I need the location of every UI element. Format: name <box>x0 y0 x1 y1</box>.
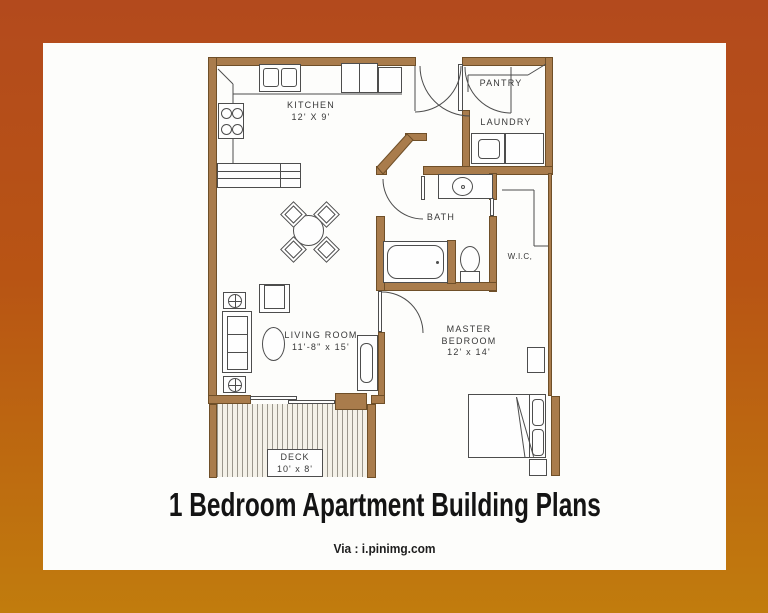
wic-name: W.I.C, <box>500 252 540 262</box>
washer-door <box>478 139 500 159</box>
drain <box>436 261 439 264</box>
wall <box>208 395 251 404</box>
burner <box>221 124 232 135</box>
wall <box>489 216 497 292</box>
wall <box>371 395 385 404</box>
washer <box>471 133 505 164</box>
pin-image-page: DECK 10' x 8' KITCHEN 12' X 9' PANTRY LA… <box>0 0 768 613</box>
page-title-text: 1 Bedroom Apartment Building Plans <box>169 486 601 524</box>
toilet-bowl <box>460 246 480 273</box>
attribution-text: Via : i.pinimg.com <box>333 541 435 556</box>
kitchen-label: KITCHEN 12' X 9' <box>261 100 361 123</box>
sliding-door-panel <box>288 400 335 404</box>
master-bedroom-label: MASTER BEDROOM 12' x 14' <box>429 324 509 359</box>
bath-name: BATH <box>411 212 471 224</box>
deck-label: DECK 10' x 8' <box>268 452 322 475</box>
master-dims: 12' x 14' <box>429 347 509 359</box>
wic-door-leaf <box>490 198 494 216</box>
master-door-arc <box>382 292 423 333</box>
laundry-label: LAUNDRY <box>466 117 546 129</box>
armchair <box>259 284 290 313</box>
wall <box>545 57 553 173</box>
refrigerator <box>359 63 378 93</box>
pantry-label: PANTRY <box>461 78 541 90</box>
sofa <box>222 311 252 373</box>
pantry-door-arc <box>465 67 511 113</box>
end-table-lamp <box>228 294 242 308</box>
deck-label-box: DECK 10' x 8' <box>267 449 323 477</box>
bed <box>468 394 546 458</box>
bath-label: BATH <box>411 212 471 224</box>
sofa-cushions <box>227 316 248 370</box>
laundry-name: LAUNDRY <box>466 117 546 129</box>
bath-door-leaf <box>421 176 425 200</box>
deck-dims: 10' x 8' <box>268 464 322 476</box>
deck-name: DECK <box>268 452 322 464</box>
wall <box>367 404 376 478</box>
wic-label: W.I.C, <box>500 252 540 262</box>
drain <box>461 185 465 189</box>
wall <box>376 166 387 175</box>
wall <box>462 57 553 66</box>
wall <box>447 240 456 284</box>
wall-headboard-strip <box>551 396 560 476</box>
master-door-leaf <box>378 291 382 332</box>
wall <box>335 393 367 410</box>
living-dims: 11'-8" x 15' <box>261 342 381 354</box>
burner <box>232 124 243 135</box>
sink-basin <box>281 68 297 87</box>
wall <box>548 173 552 396</box>
wic-closet-lines <box>502 190 548 246</box>
sink-basin <box>263 68 279 87</box>
bathroom-sink <box>452 177 473 196</box>
living-name: LIVING ROOM <box>261 330 381 342</box>
wall <box>209 404 217 478</box>
stove <box>218 103 244 139</box>
kitchen-name: KITCHEN <box>261 100 361 112</box>
page-title: 1 Bedroom Apartment Building Plans <box>43 486 726 524</box>
attribution: Via : i.pinimg.com <box>43 540 726 558</box>
wall <box>378 282 497 291</box>
end-table-lamp <box>228 378 242 392</box>
kitchen-dims: 12' X 9' <box>261 112 361 124</box>
wall <box>208 57 416 66</box>
kitchen-sink <box>259 64 301 92</box>
pillow <box>532 399 544 426</box>
armchair-seat <box>264 285 285 309</box>
nightstand <box>529 459 547 476</box>
kitchen-island <box>217 163 301 188</box>
kitchen-cabinet <box>378 67 402 93</box>
entry-door-arc <box>415 66 461 112</box>
nightstand <box>527 347 545 373</box>
burner <box>232 108 243 119</box>
toilet-tank <box>460 271 480 283</box>
refrigerator <box>341 63 360 93</box>
pantry-name: PANTRY <box>461 78 541 90</box>
pillow <box>532 429 544 456</box>
burner <box>221 108 232 119</box>
wall <box>405 133 427 141</box>
dryer <box>505 133 544 164</box>
master-name-line2: BEDROOM <box>429 336 509 348</box>
wall <box>208 57 217 404</box>
master-name-line1: MASTER <box>429 324 509 336</box>
living-room-label: LIVING ROOM 11'-8" x 15' <box>261 330 381 353</box>
bathtub <box>383 241 448 283</box>
